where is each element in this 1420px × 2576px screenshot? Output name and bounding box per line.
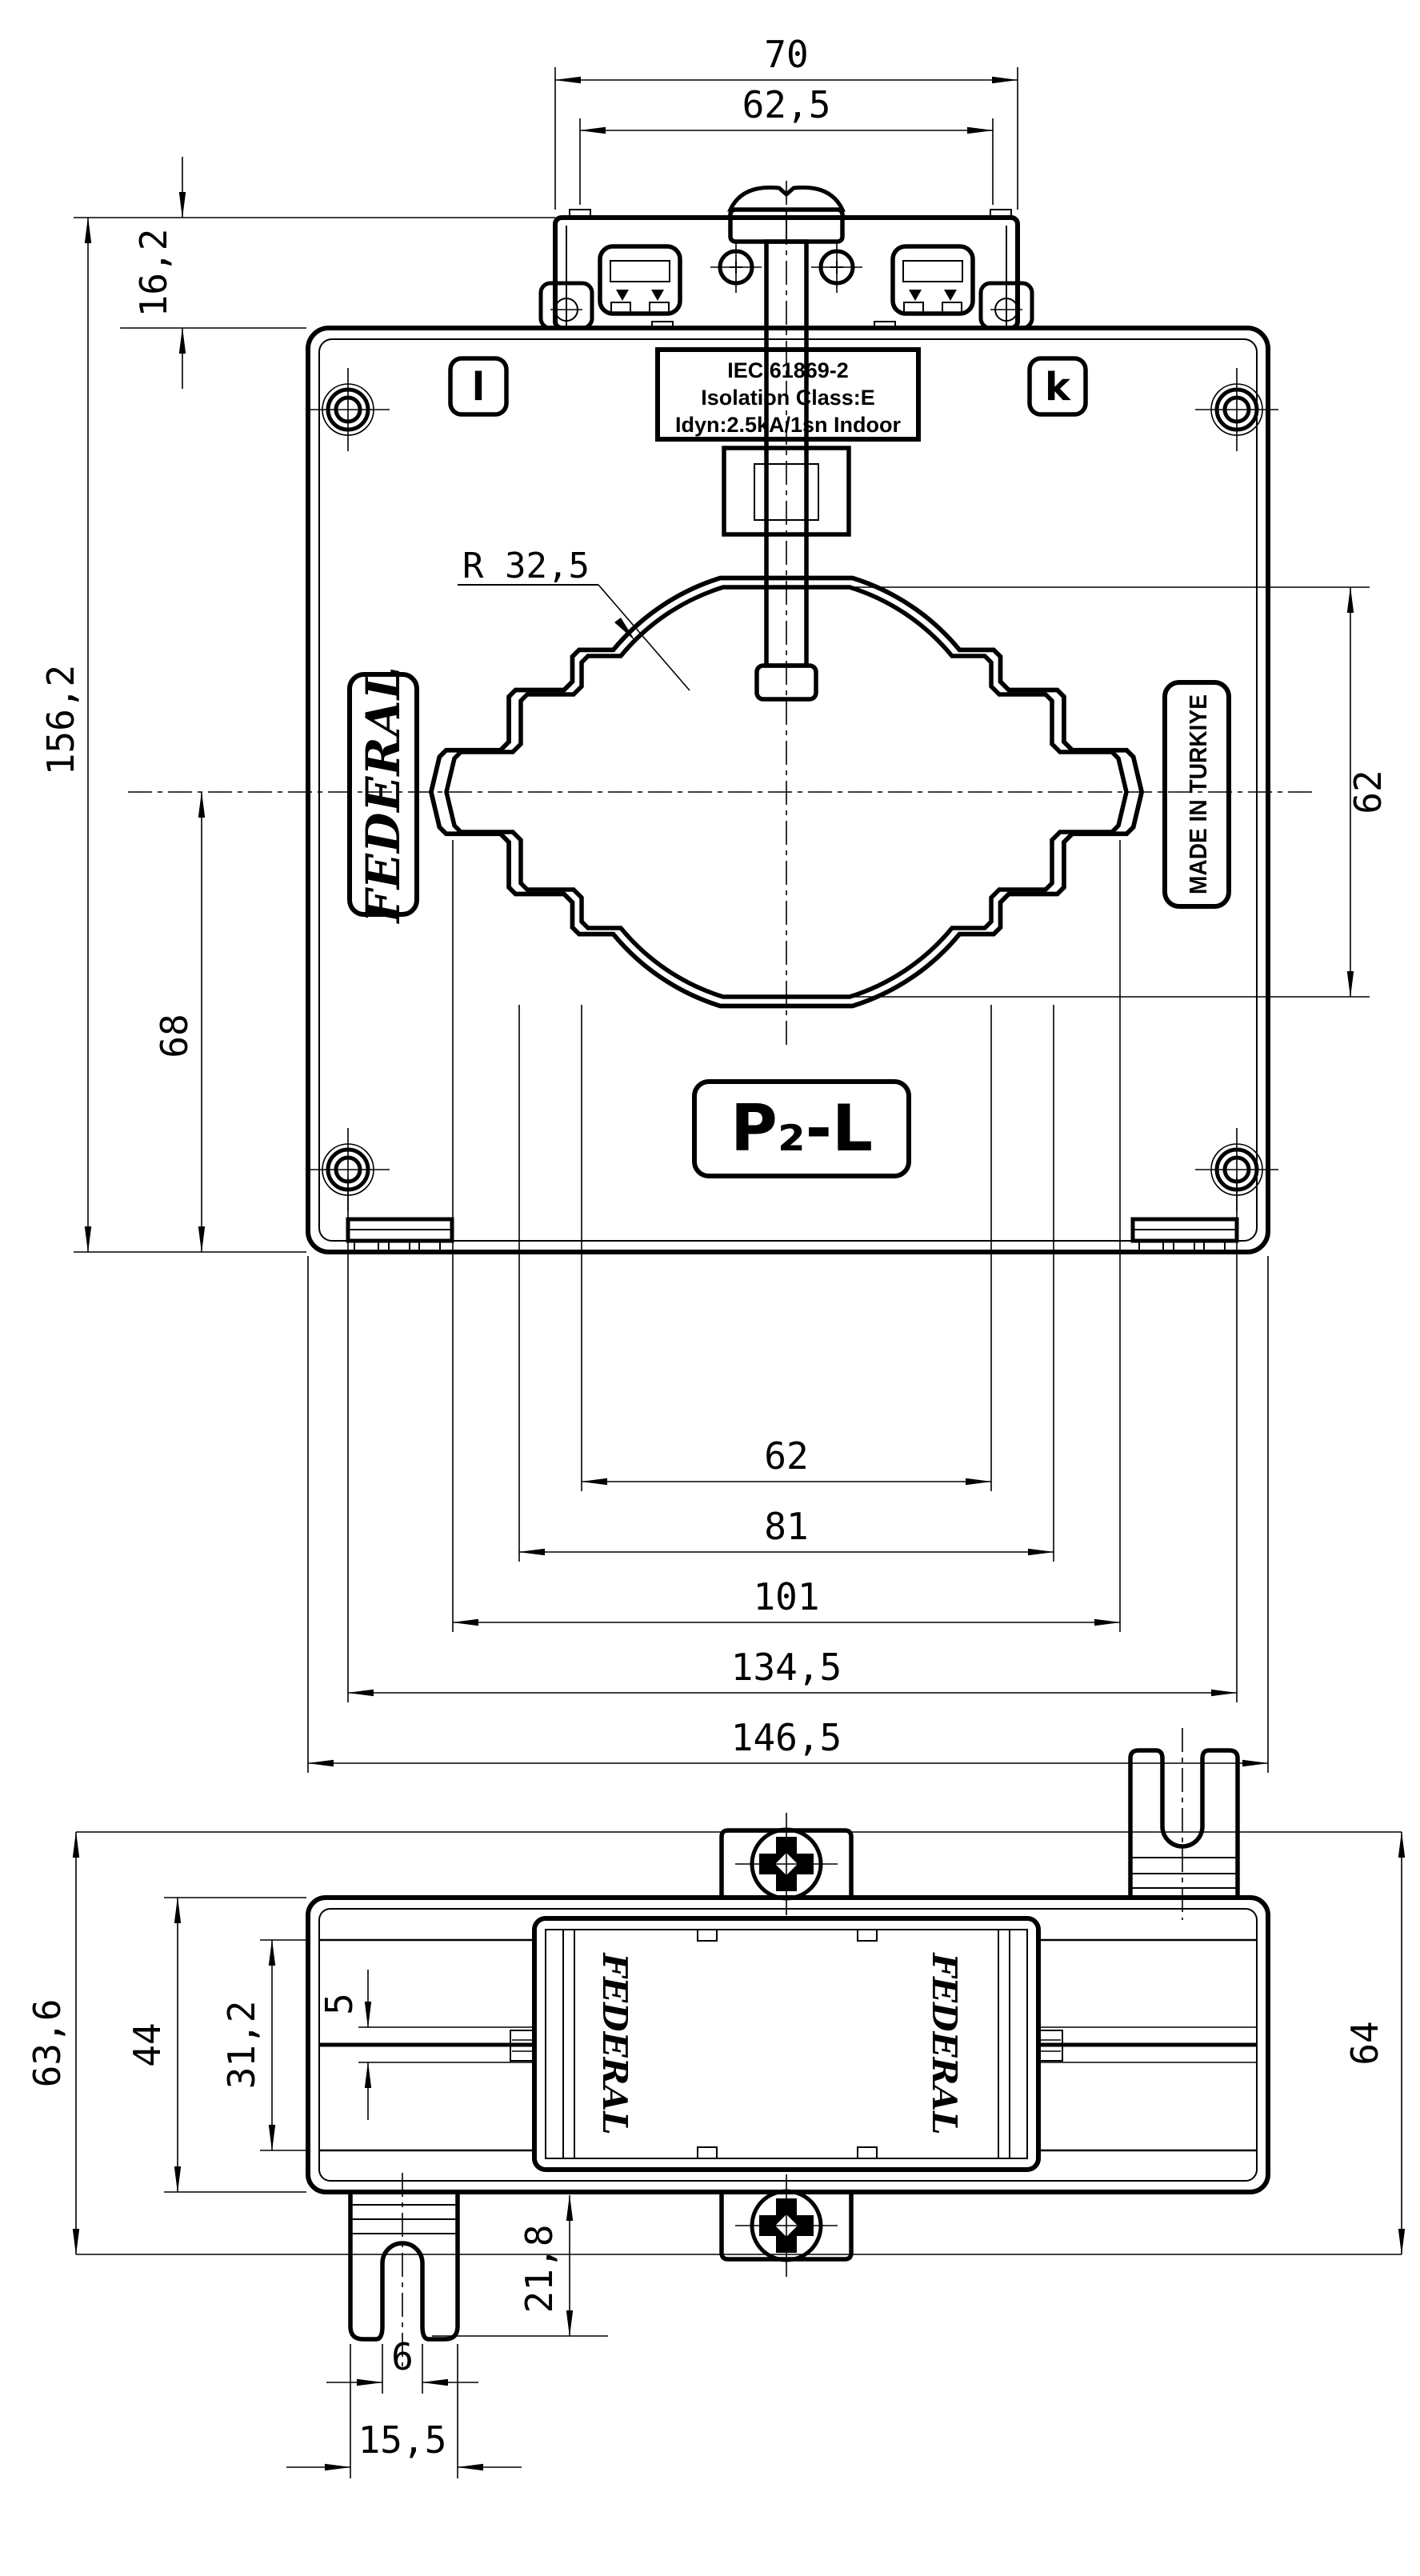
- brand-plate-federal: FEDERAL: [350, 666, 417, 925]
- svg-text:63,6: 63,6: [26, 1999, 69, 2088]
- svg-text:68: 68: [153, 1014, 196, 1058]
- svg-text:62: 62: [1346, 770, 1390, 814]
- svg-text:156,2: 156,2: [39, 665, 82, 775]
- nameplate-line3: Idyn:2.5kA/1sn Indoor: [675, 413, 902, 437]
- svg-text:62: 62: [764, 1434, 808, 1478]
- svg-text:64: 64: [1343, 2021, 1386, 2065]
- cover-brand-left: FEDERAL: [595, 1952, 634, 2134]
- nameplate-line2: Isolation Class:E: [701, 386, 875, 410]
- technical-drawing-page: IEC 61869-2 Isolation Class:E Idyn:2.5kA…: [0, 0, 1420, 2576]
- origin-text: MADE IN TURKIYE: [1184, 694, 1212, 894]
- svg-text:70: 70: [764, 33, 808, 76]
- brand-federal-text: FEDERAL: [356, 666, 410, 925]
- terminal-cover: FEDERAL FEDERAL: [510, 1918, 1062, 2170]
- svg-text:5: 5: [318, 1993, 361, 2015]
- svg-text:101: 101: [753, 1575, 819, 1618]
- ct-dimension-drawing: IEC 61869-2 Isolation Class:E Idyn:2.5kA…: [0, 0, 1420, 2576]
- polarity-text: P₂-L: [730, 1091, 873, 1166]
- svg-text:81: 81: [764, 1505, 808, 1548]
- terminal-marker-l-label: l: [472, 365, 485, 410]
- terminal-marker-k-label: k: [1045, 365, 1071, 410]
- cover-brand-right: FEDERAL: [925, 1952, 964, 2134]
- radius-label: R 32,5: [462, 546, 590, 586]
- svg-text:62,5: 62,5: [742, 83, 831, 126]
- svg-text:21,8: 21,8: [518, 2225, 561, 2314]
- svg-text:134,5: 134,5: [731, 1646, 842, 1689]
- svg-text:15,5: 15,5: [358, 2418, 447, 2462]
- svg-text:6: 6: [391, 2335, 414, 2378]
- nameplate-line1: IEC 61869-2: [727, 358, 849, 382]
- svg-text:146,5: 146,5: [731, 1716, 842, 1759]
- svg-text:16,2: 16,2: [132, 229, 175, 318]
- svg-text:44: 44: [126, 2022, 169, 2066]
- svg-text:31,2: 31,2: [220, 2001, 263, 2090]
